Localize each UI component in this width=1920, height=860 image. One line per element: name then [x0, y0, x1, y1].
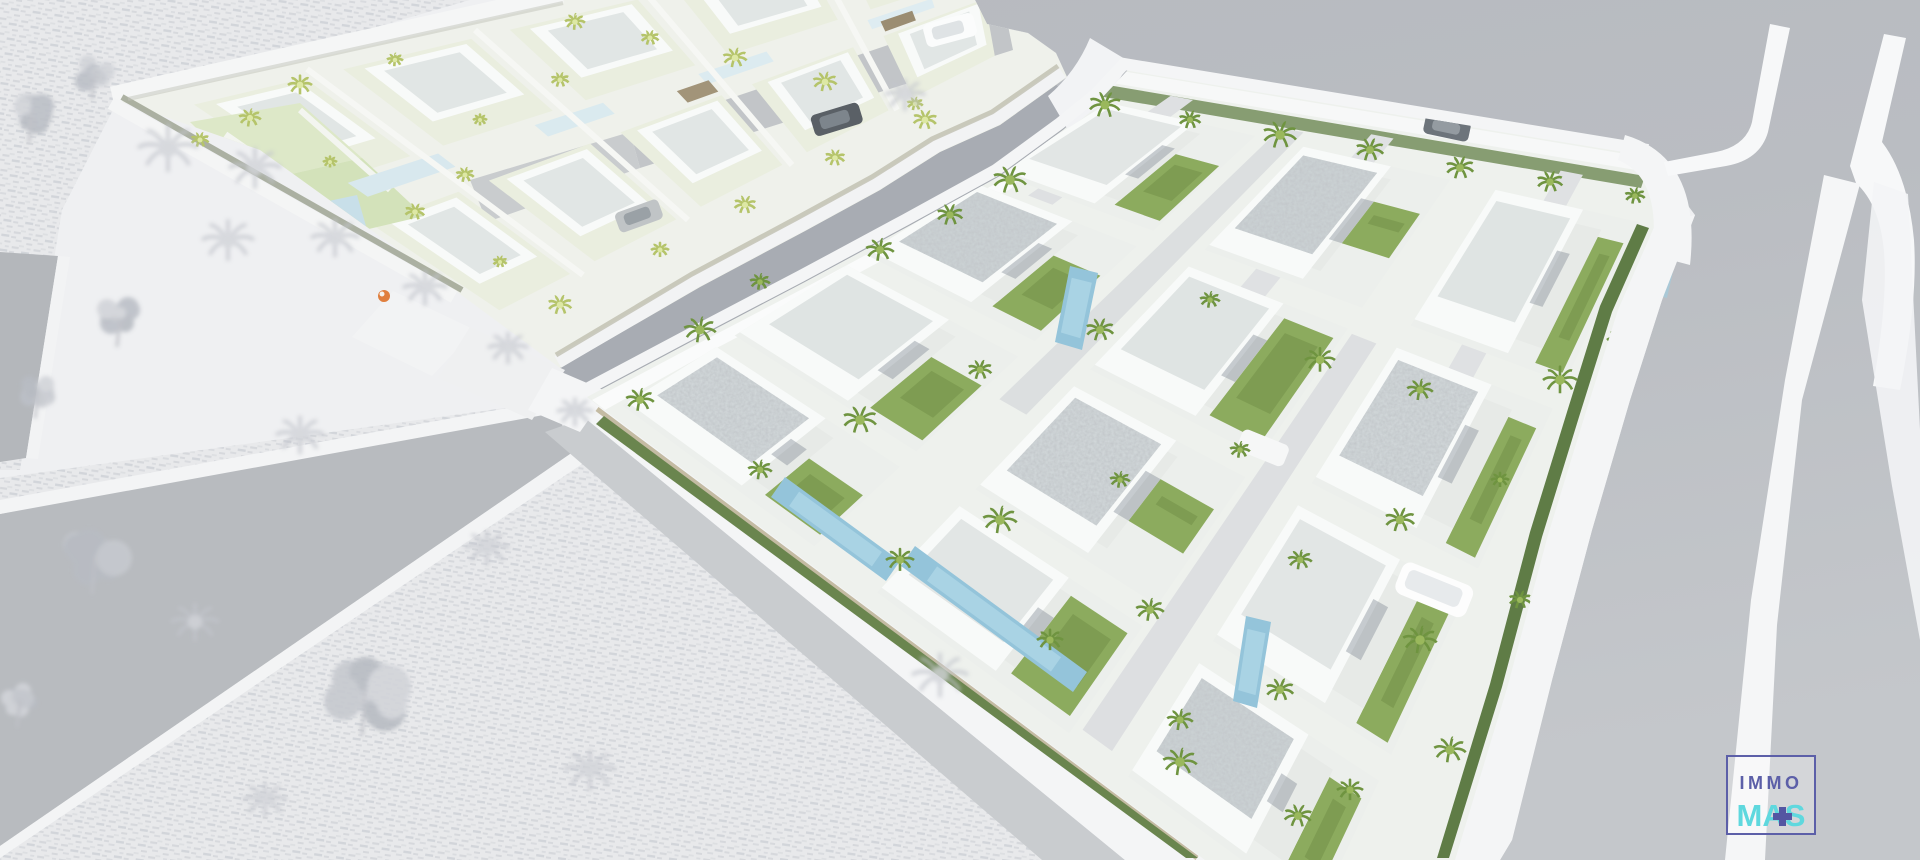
svg-text:IMMO: IMMO: [1740, 773, 1803, 793]
svg-text:MAS: MAS: [1737, 798, 1806, 833]
